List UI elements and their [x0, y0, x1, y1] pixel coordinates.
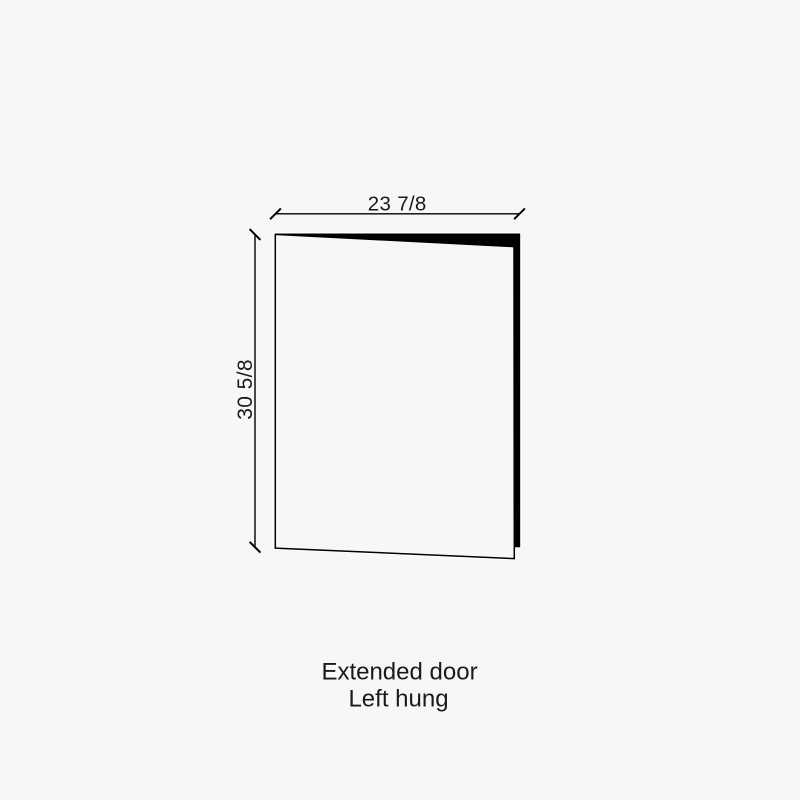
svg-text:30 5/8: 30 5/8: [234, 359, 257, 420]
svg-text:Extended door: Extended door: [321, 659, 477, 686]
svg-text:Left hung: Left hung: [348, 685, 448, 712]
svg-text:23 7/8: 23 7/8: [368, 192, 427, 215]
